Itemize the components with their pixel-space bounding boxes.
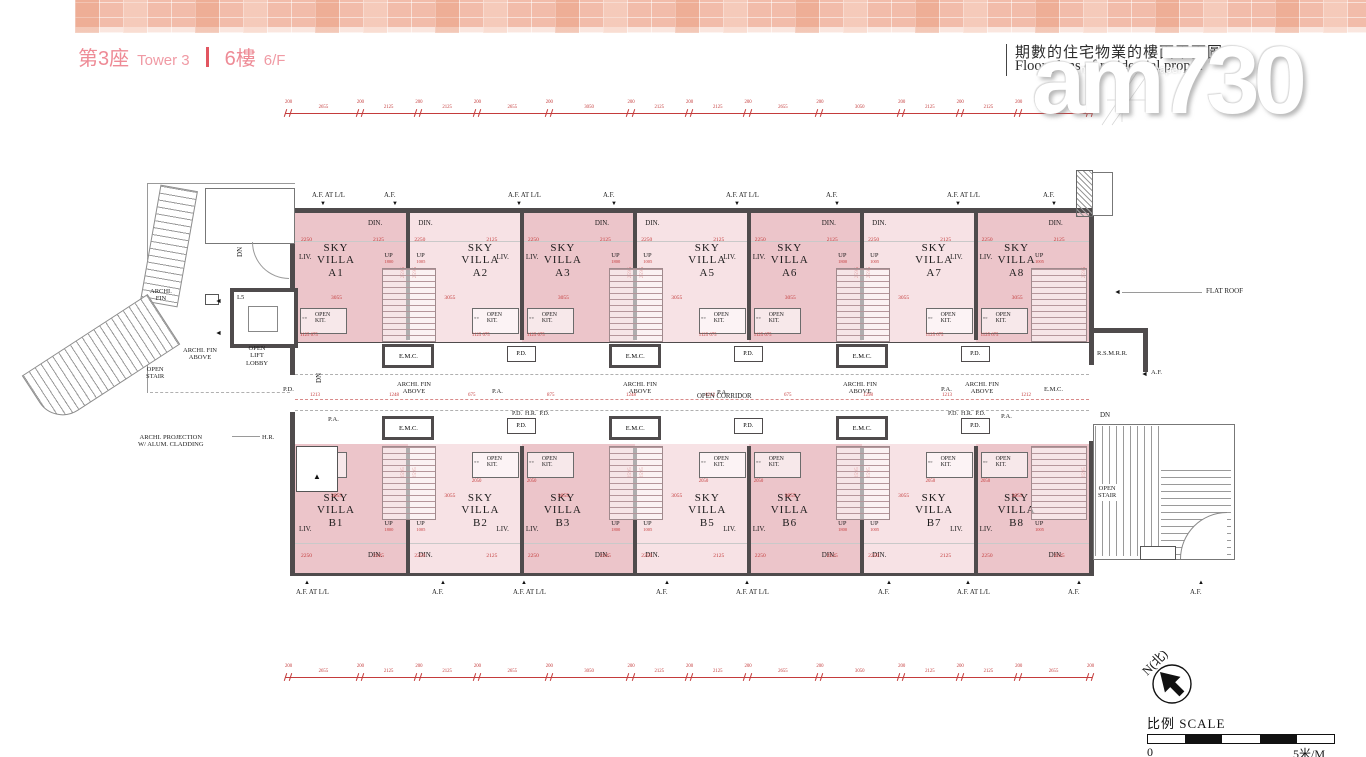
af-callout: A.F. AT L/L (947, 192, 980, 200)
dim-tick (1091, 109, 1094, 117)
dim-label: 2125 (362, 106, 415, 111)
arrow-up-icon: ▲ (440, 580, 446, 586)
pd-hr-pd-label: P.D. H.R. P.D. (948, 411, 985, 418)
dim-label: 1005 (643, 528, 652, 533)
pd-hr-pd-label: P.D. H.R. P.D. (512, 411, 549, 418)
pa-label: P.A. (1001, 413, 1012, 420)
din-label: DIN. (872, 220, 886, 228)
pd-box: P.D. (734, 346, 763, 362)
rsmrr-wall (1143, 328, 1148, 372)
af-callout: A.F. AT L/L (296, 589, 329, 597)
dim-label: 1005 (870, 260, 879, 265)
open-kitchen-label: OPEN KIT. (769, 456, 784, 469)
dim-label: 2655 (1020, 670, 1087, 675)
pd-label: P.D. (283, 386, 294, 393)
flat-roof-label: FLAT ROOF (1206, 288, 1243, 296)
scale-seg (1148, 735, 1185, 743)
hr-label: H.R. (262, 434, 274, 441)
af-callout: A.F. (878, 589, 890, 597)
dashed-line (150, 392, 290, 393)
corridor-edge (295, 374, 1089, 375)
burner-icon: ◦◦ (983, 459, 988, 467)
floor-plan: SKY VILLA A1DIN.LIV.◦◦OPEN KIT.225021253… (0, 0, 1366, 757)
arrow-up-icon: ▲ (313, 473, 321, 481)
dim-label: 2250 (414, 554, 425, 560)
arrow-down-icon: ▼ (392, 201, 398, 207)
dn-label: DN (316, 373, 324, 383)
dim-label: 1800 (611, 260, 620, 265)
newspaper-page: 第3座 Tower 3 6樓 6/F 期數的住宅物業的樓面平面圖 Floor p… (0, 0, 1366, 757)
dim-label: 2125 (713, 554, 724, 560)
open-kitchen-label: OPEN KIT. (714, 456, 729, 469)
archi-fin-above-label: ARCHI. FIN ABOVE (623, 381, 657, 396)
burner-icon: ◦◦ (474, 315, 479, 323)
arrow-up-icon: ▲ (521, 580, 527, 586)
leader-line (1122, 292, 1202, 293)
dim-label: 2125 (373, 554, 384, 560)
arrow-up-icon: ▲ (1198, 580, 1204, 586)
lift-label: L5 (237, 294, 244, 301)
dim-label: 2655 (750, 106, 817, 111)
open-kitchen-label: OPEN KIT. (487, 312, 502, 325)
open-kitchen-label: OPEN KIT. (769, 312, 784, 325)
stair-block (609, 268, 663, 342)
hatched-fin (1076, 170, 1093, 217)
dim-label: 2050 (472, 480, 482, 485)
stair-block (1031, 446, 1087, 520)
stair-block (382, 446, 436, 520)
dim-chain-line (285, 113, 1092, 114)
burner-icon: ◦◦ (756, 315, 761, 323)
pd-box: P.D. (961, 418, 990, 434)
dim-label: 2050 (699, 480, 709, 485)
party-wall (520, 446, 524, 573)
liv-label: LIV. (980, 526, 993, 534)
dim-label: 2125 (362, 670, 415, 675)
stair-block (836, 446, 890, 520)
party-wall (747, 213, 751, 340)
dn-label: DN (237, 247, 245, 257)
dim-label: 3055 (671, 296, 682, 302)
din-label: DIN. (1049, 220, 1063, 228)
af-callout: A.F. AT L/L (513, 589, 546, 597)
stair-block (1031, 268, 1087, 342)
dim-label: 875 (547, 393, 555, 398)
leader-line (232, 436, 260, 437)
dim-label: 1800 (384, 528, 393, 533)
emc-box: E.M.C. (382, 344, 434, 368)
liv-label: LIV. (753, 526, 766, 534)
dim-label: 2125 (691, 670, 744, 675)
dim-label: 3055 (1012, 296, 1023, 302)
emc-box: E.M.C. (609, 416, 661, 440)
open-kitchen-label: OPEN KIT. (996, 456, 1011, 469)
burner-icon: ◦◦ (701, 459, 706, 467)
dim-label: 2655 (290, 670, 357, 675)
dim-label: 1125 675 (754, 334, 772, 339)
dim-label: 2125 (827, 554, 838, 560)
pd-box: P.D. (961, 346, 990, 362)
liv-label: LIV. (299, 254, 312, 262)
liv-label: LIV. (526, 526, 539, 534)
dim-label: 2125 (633, 670, 686, 675)
dim-label: 2125 (633, 106, 686, 111)
pa-label: P.A. (492, 388, 503, 395)
burner-icon: ◦◦ (928, 315, 933, 323)
arrow-down-icon: ▼ (611, 201, 617, 207)
balcony-line (295, 241, 1089, 242)
dim-label: 3055 (331, 296, 342, 302)
dim-label: 3050 (551, 106, 628, 111)
burner-icon: ◦◦ (302, 315, 307, 323)
af-callout: A.F. AT L/L (508, 192, 541, 200)
dim-label: 1213 (942, 393, 952, 398)
dim-label: 3055 (785, 494, 796, 500)
scale-start: 0 (1147, 745, 1153, 757)
emc-box: E.M.C. (382, 416, 434, 440)
liv-label: LIV. (496, 254, 509, 262)
lift-car (248, 306, 278, 332)
arrow-down-icon: ▼ (734, 201, 740, 207)
open-kitchen-label: OPEN KIT. (996, 312, 1011, 325)
af-callout: A.F. (826, 192, 838, 200)
pd-box: P.D. (507, 418, 536, 434)
dim-label: 2050 (754, 480, 764, 485)
dim-label: 3050 (551, 670, 628, 675)
scale-end: 5米/M (1293, 745, 1325, 757)
scale-seg (1260, 735, 1297, 743)
dim-label: 2125 (691, 106, 744, 111)
burner-icon: ◦◦ (928, 459, 933, 467)
dim-label: 2250 (982, 554, 993, 560)
liv-label: LIV. (526, 254, 539, 262)
dim-label: 2250 (868, 554, 879, 560)
dim-label: 1005 (1035, 260, 1044, 265)
dim-label: 2655 (750, 670, 817, 675)
stair-block (609, 446, 663, 520)
af-callout: A.F. (656, 589, 668, 597)
plan-wall (1089, 208, 1094, 343)
af-label: A.F. (1151, 369, 1162, 376)
af-callout: A.F. (603, 192, 615, 200)
open-stair-label: OPEN STAIR (1096, 484, 1118, 501)
scale-title: 比例 SCALE (1147, 713, 1225, 732)
dim-label: 2250 (301, 554, 312, 560)
dim-label: 2125 (903, 106, 956, 111)
din-label: DIN. (645, 220, 659, 228)
dim-label: 3050 (821, 106, 898, 111)
dim-label: 1125 675 (527, 334, 545, 339)
party-wall (974, 213, 978, 340)
burner-icon: ◦◦ (983, 315, 988, 323)
stair-room (205, 188, 295, 244)
pd-box: P.D. (734, 418, 763, 434)
dim-label: 2655 (479, 670, 546, 675)
scale-seg (1185, 735, 1222, 743)
arrow-left-icon: ◄ (1114, 289, 1121, 296)
liv-label: LIV. (950, 526, 963, 534)
dim-label: 1800 (838, 528, 847, 533)
arrow-icon: ◄ (215, 298, 222, 305)
af-callout: A.F. AT L/L (726, 192, 759, 200)
balcony-line (295, 543, 1089, 544)
dn-label: DN (1100, 412, 1110, 420)
open-kitchen-label: OPEN KIT. (542, 456, 557, 469)
dim-label: 3055 (558, 296, 569, 302)
burner-icon: ◦◦ (529, 315, 534, 323)
dim-label: 1125 675 (300, 334, 318, 339)
lift-shaft: L5 (230, 288, 298, 348)
arrow-down-icon: ▼ (320, 201, 326, 207)
liv-label: LIV. (299, 526, 312, 534)
dim-label: 2125 (1054, 554, 1065, 560)
archi-fin-above-label: ARCHI. FIN ABOVE (183, 347, 217, 362)
liv-label: LIV. (496, 526, 509, 534)
scale-seg (1222, 735, 1259, 743)
dim-label: 2125 (486, 554, 497, 560)
dim-label: 1800 (838, 260, 847, 265)
dim-label: 2050 (981, 480, 991, 485)
party-wall (520, 213, 524, 340)
dim-label: 200 (1087, 101, 1092, 106)
dim-label: 2250 (755, 554, 766, 560)
pa-label: P.A. (941, 386, 952, 393)
din-label: DIN. (595, 220, 609, 228)
dim-label: 1005 (416, 260, 425, 265)
dim-label: 1125 675 (472, 334, 490, 339)
arrow-icon: ◄ (215, 330, 222, 337)
open-kitchen-label: OPEN KIT. (714, 312, 729, 325)
din-label: DIN. (368, 220, 382, 228)
af-callout: A.F. (432, 589, 444, 597)
dim-label: 2655 (1020, 106, 1087, 111)
liv-label: LIV. (753, 254, 766, 262)
dim-label: 3055 (558, 494, 569, 500)
af-callout: A.F. AT L/L (957, 589, 990, 597)
fin-block (1092, 172, 1113, 216)
rsmrr-label: R.S.M.R.R. (1097, 350, 1128, 357)
dim-label: 3055 (898, 494, 909, 500)
open-kitchen-label: OPEN KIT. (487, 456, 502, 469)
arrow-down-icon: ▼ (1051, 201, 1057, 207)
stair-landing (1140, 546, 1176, 560)
dim-label: 1125 675 (699, 334, 717, 339)
dim-label: 1005 (870, 528, 879, 533)
archi-fin-above-label: ARCHI. FIN ABOVE (843, 381, 877, 396)
rsmrr-wall (1092, 328, 1148, 333)
plan-wall (290, 412, 295, 444)
dim-label: 3055 (785, 296, 796, 302)
af-callout: A.F. (384, 192, 396, 200)
dim-label: 1125 675 (926, 334, 944, 339)
af-callout: A.F. (1190, 589, 1202, 597)
pa-label: P.A. (328, 416, 339, 423)
dim-label: 3055 (444, 296, 455, 302)
dim-label: 675 (468, 393, 476, 398)
dim-label: 2125 (940, 554, 951, 560)
arrow-up-icon: ▲ (304, 580, 310, 586)
arrow-up-icon: ▲ (744, 580, 750, 586)
emc-box: E.M.C. (836, 416, 888, 440)
corridor-centerline (295, 399, 1089, 400)
din-label: DIN. (822, 220, 836, 228)
archi-fin-label: ARCHI. FIN (150, 288, 172, 303)
open-kitchen-label: OPEN KIT. (941, 456, 956, 469)
plan-wall (1089, 343, 1094, 365)
dim-label: 1800 (384, 260, 393, 265)
stair-block (382, 268, 436, 342)
core-outline (147, 183, 295, 184)
liv-label: LIV. (980, 254, 993, 262)
dim-label: 200 (1087, 665, 1092, 670)
dim-label: 1005 (643, 260, 652, 265)
emc-box: E.M.C. (836, 344, 888, 368)
arrow-up-icon: ▲ (965, 580, 971, 586)
open-kitchen-label: OPEN KIT. (941, 312, 956, 325)
dim-label: 3055 (444, 494, 455, 500)
din-label: DIN. (418, 220, 432, 228)
party-wall (747, 446, 751, 573)
projection-label: ARCHI. PROJECTION W/ ALUM. CLADDING (138, 434, 204, 449)
hr-shaft: ▲ (296, 446, 338, 492)
dim-label: 2250 (528, 554, 539, 560)
arrow-down-icon: ▼ (516, 201, 522, 207)
dim-label: 2125 (962, 106, 1015, 111)
burner-icon: ◦◦ (474, 459, 479, 467)
arrow-up-icon: ▲ (664, 580, 670, 586)
archi-fin-above-label: ARCHI. FIN ABOVE (965, 381, 999, 396)
dim-label: 675 (784, 393, 792, 398)
dim-label: 2125 (420, 106, 473, 111)
arrow-up-icon: ▲ (1076, 580, 1082, 586)
af-callout: A.F. AT L/L (736, 589, 769, 597)
open-stair-label: OPEN STAIR (146, 366, 164, 381)
open-kitchen-label: OPEN KIT. (542, 312, 557, 325)
dim-label: 1213 (310, 393, 320, 398)
arrow-left-icon: ◄ (1141, 371, 1148, 378)
dim-label: 3055 (1012, 494, 1023, 500)
dim-label: 1212 (1021, 393, 1031, 398)
dim-label: 2250 (641, 554, 652, 560)
dim-label: 2125 (420, 670, 473, 675)
dim-label: 2050 (926, 480, 936, 485)
af-callout: A.F. (1043, 192, 1055, 200)
burner-icon: ◦◦ (756, 459, 761, 467)
arrow-up-icon: ▲ (886, 580, 892, 586)
party-wall (974, 446, 978, 573)
archi-fin-above-label: ARCHI. FIN ABOVE (397, 381, 431, 396)
af-callout: A.F. (1068, 589, 1080, 597)
dim-label: 1800 (611, 528, 620, 533)
dim-label: 1005 (1035, 528, 1044, 533)
arrow-down-icon: ▼ (834, 201, 840, 207)
dim-label: 2050 (527, 480, 537, 485)
open-kitchen-label: OPEN KIT. (315, 312, 330, 325)
liv-label: LIV. (723, 254, 736, 262)
open-lift-lobby-label: OPEN LIFT LOBBY (246, 345, 268, 367)
burner-icon: ◦◦ (529, 459, 534, 467)
dim-label: 2655 (479, 106, 546, 111)
emc-label: E.M.C. (1044, 386, 1063, 393)
dim-label: 3055 (331, 494, 342, 500)
pd-box: P.D. (507, 346, 536, 362)
compass-icon (1148, 660, 1196, 708)
arrow-down-icon: ▼ (955, 201, 961, 207)
emc-box: E.M.C. (609, 344, 661, 368)
liv-label: LIV. (950, 254, 963, 262)
dim-label: 3055 (671, 494, 682, 500)
dim-label: 2125 (962, 670, 1015, 675)
dim-label: 3055 (898, 296, 909, 302)
dim-chain-line (285, 677, 1092, 678)
scale-seg (1297, 735, 1334, 743)
dim-label: 3050 (821, 670, 898, 675)
af-callout: A.F. AT L/L (312, 192, 345, 200)
liv-label: LIV. (723, 526, 736, 534)
dim-tick (1091, 673, 1094, 681)
stair-block (836, 268, 890, 342)
dim-label: 1005 (416, 528, 425, 533)
dim-label: 2125 (903, 670, 956, 675)
dim-label: 1125 675 (981, 334, 999, 339)
dim-label: 2655 (290, 106, 357, 111)
dim-label: 2125 (600, 554, 611, 560)
open-corridor-label: OPEN CORRIDOR (697, 393, 752, 401)
scale-bar (1147, 734, 1335, 744)
burner-icon: ◦◦ (701, 315, 706, 323)
